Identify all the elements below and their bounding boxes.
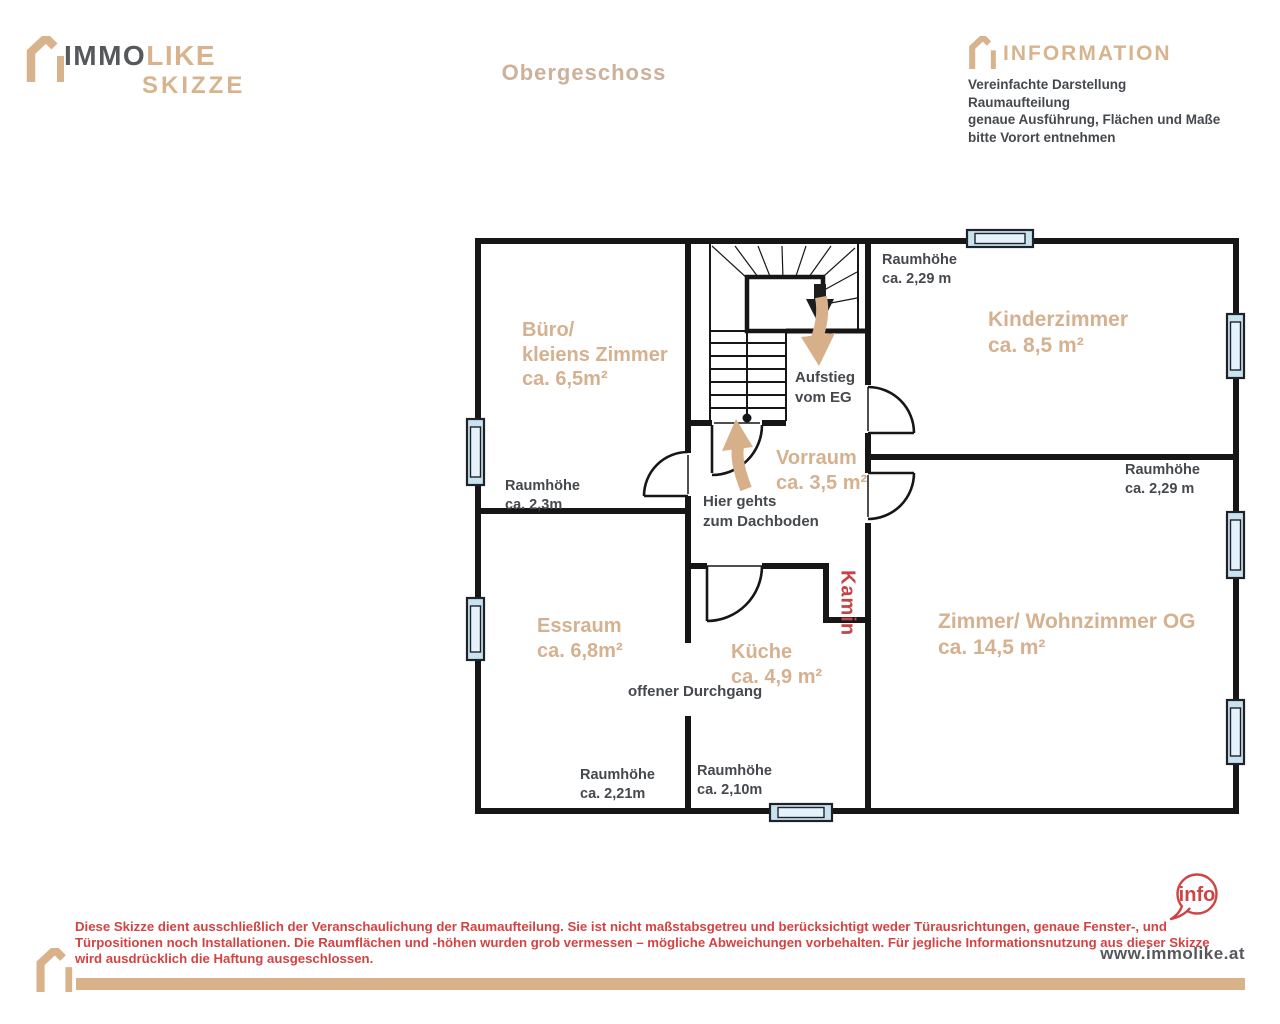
footer-accent-bar [76,978,1245,990]
window-kinderzimmer-right [1227,314,1244,378]
room-label-buero: Büro/ kleiens Zimmer ca. 6,5m² [522,318,668,392]
website-link[interactable]: www.immolike.at [1000,944,1245,964]
room-label-line: Küche [731,640,822,665]
footer-house-icon [30,948,76,992]
disclaimer-line: Diese Skizze dient ausschließlich der Ve… [75,919,1210,935]
note-label-dachboden: Hier gehts zum Dachboden [703,492,819,531]
note-line: Hier gehts [703,492,819,512]
window-buero [467,419,484,485]
door-wohnzimmer [868,473,914,519]
door-buero [644,452,688,496]
height-label-line: ca. 2,29 m [1125,480,1200,499]
floorplan-drawing [0,0,1280,1024]
note-line: Aufstieg [795,368,855,388]
room-label-line: Essraum [537,614,623,639]
height-label-line: ca. 2,21m [580,785,655,804]
height-label-wohnzimmer: Raumhöhe ca. 2,29 m [1125,461,1200,499]
room-label-essraum: Essraum ca. 6,8m² [537,614,623,663]
floorplan-page: { "header": { "logo_line1_dark": "IMMO",… [0,0,1280,1024]
height-label-line: Raumhöhe [1125,461,1200,480]
door-kinderzimmer [868,387,914,433]
door-kueche [707,566,762,621]
room-label-line: ca. 6,5m² [522,367,668,392]
stair-rail-post [743,414,752,423]
dachboden-arrow [722,419,753,489]
height-label-kinderzimmer: Raumhöhe ca. 2,29 m [882,251,957,289]
height-label-line: Raumhöhe [580,766,655,785]
window-wohnzimmer-upper [1227,512,1244,578]
note-label-aufstieg: Aufstieg vom EG [795,368,855,407]
note-line: zum Dachboden [703,512,819,532]
room-label-vorraum: Vorraum ca. 3,5 m² [776,446,867,495]
room-label-wohnzimmer: Zimmer/ Wohnzimmer OG ca. 14,5 m² [938,609,1196,661]
height-label-kueche: Raumhöhe ca. 2,10m [697,762,772,800]
room-label-line: Büro/ [522,318,668,343]
window-kinderzimmer-top [967,230,1033,247]
room-label-line: ca. 6,8m² [537,639,623,664]
height-label-line: ca. 2,3m [505,496,580,515]
height-label-line: Raumhöhe [505,477,580,496]
note-label-durchgang: offener Durchgang [628,682,762,702]
window-wohnzimmer-lower [1227,700,1244,764]
height-label-line: ca. 2,10m [697,781,772,800]
height-label-essraum: Raumhöhe ca. 2,21m [580,766,655,804]
room-label-line: Vorraum [776,446,867,471]
window-essraum [467,598,484,660]
height-label-line: Raumhöhe [697,762,772,781]
height-label-line: Raumhöhe [882,251,957,270]
room-label-line: Zimmer/ Wohnzimmer OG [938,609,1196,635]
room-label-line: Kinderzimmer [988,307,1128,333]
info-badge-text: info [1179,884,1216,906]
height-label-line: ca. 2,29 m [882,270,957,289]
room-label-line: ca. 14,5 m² [938,635,1196,661]
info-bubble-icon: info [1166,872,1226,922]
kamin-label: Kamin [836,570,859,636]
note-line: vom EG [795,388,855,408]
room-label-line: kleiens Zimmer [522,343,668,368]
height-label-buero: Raumhöhe ca. 2,3m [505,477,580,515]
room-label-kinderzimmer: Kinderzimmer ca. 8,5 m² [988,307,1128,359]
window-kueche-bottom [770,804,832,821]
room-label-line: ca. 8,5 m² [988,333,1128,359]
